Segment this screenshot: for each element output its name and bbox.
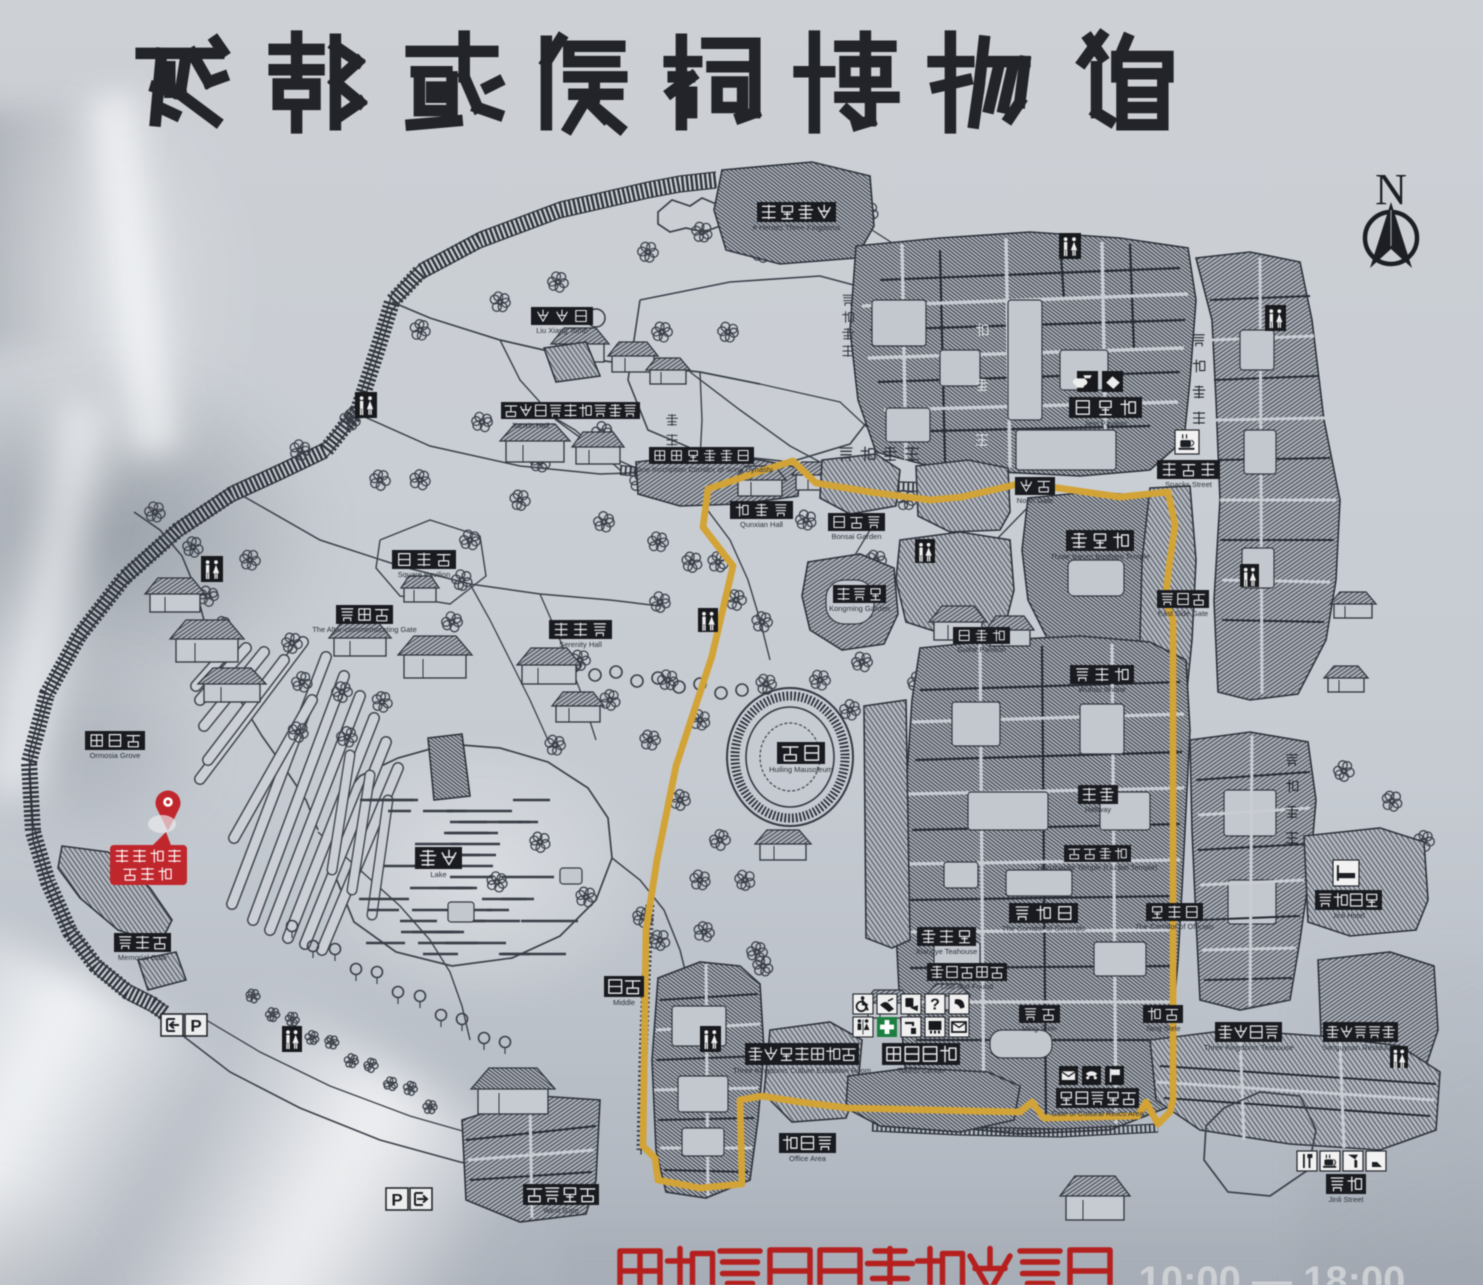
svg-text:# Heroes Three Kingdoms: # Heroes Three Kingdoms xyxy=(753,223,841,232)
svg-text:Three Sworn Brothers Temple: Three Sworn Brothers Temple xyxy=(1050,552,1150,561)
svg-text:Liu Xiang Tomb: Liu Xiang Tomb xyxy=(536,326,588,335)
svg-text:Jinli Hotel: Jinli Hotel xyxy=(1332,911,1365,920)
svg-text:Ormosia Grove: Ormosia Grove xyxy=(90,751,141,760)
svg-text:The Altar-commemorating Gate: The Altar-commemorating Gate xyxy=(312,625,417,634)
svg-text:Huiling Mausoleum: Huiling Mausoleum xyxy=(769,765,833,774)
svg-text:Square Pavilion: Square Pavilion xyxy=(398,570,451,579)
svg-text:East Side Gate: East Side Gate xyxy=(1158,609,1208,618)
svg-text:Jianxin Hall: Jianxin Hall xyxy=(511,421,550,430)
svg-text:Jinli Street: Jinli Street xyxy=(1328,1195,1364,1204)
svg-text:Hallway: Hallway xyxy=(1085,805,1112,814)
svg-text:Gate of Cultural Relics Area: Gate of Cultural Relics Area xyxy=(1051,1109,1144,1118)
svg-text:10:00 — 18:00: 10:00 — 18:00 xyxy=(1139,1259,1406,1285)
svg-text:Tourist Center: Tourist Center xyxy=(898,1066,945,1075)
svg-text:?: ? xyxy=(930,997,940,1014)
svg-text:Office Area: Office Area xyxy=(789,1154,827,1163)
svg-text:Tang Stele: Tang Stele xyxy=(1145,1024,1180,1033)
svg-text:Kongming Garden: Kongming Garden xyxy=(829,604,890,613)
svg-text:Sanguyuan Restaurant: Sanguyuan Restaurant xyxy=(1322,1043,1400,1052)
svg-text:Ming Stele: Ming Stele xyxy=(1022,1024,1057,1033)
svg-text:The Corridor of Generals: The Corridor of Generals xyxy=(1002,924,1085,933)
svg-text:North Gate: North Gate xyxy=(1017,496,1054,505)
svg-text:Three Kingdoms Culture Exhibit: Three Kingdoms Culture Exhibition Room xyxy=(733,1066,871,1075)
svg-text:P: P xyxy=(391,1191,402,1210)
svg-text:Middle: Middle xyxy=(613,998,635,1007)
svg-text:Wuhou Shrine: Wuhou Shrine xyxy=(1078,685,1125,694)
svg-text:Serenity Hall: Serenity Hall xyxy=(559,640,602,649)
svg-text:Bonsai Garden: Bonsai Garden xyxy=(831,532,881,541)
svg-text:Guihe Pavilion: Guihe Pavilion xyxy=(957,645,1005,654)
svg-text:Lake: Lake xyxy=(430,870,446,879)
svg-text:Lost and Found: Lost and Found xyxy=(941,982,993,991)
svg-text:Three Kingdoms Teahouse: Three Kingdoms Teahouse xyxy=(1204,1043,1294,1052)
svg-text:Qunxian Hall: Qunxian Hall xyxy=(740,520,783,529)
svg-text:West Gate: West Gate xyxy=(543,1206,578,1215)
svg-text:The Corridor of Officials: The Corridor of Officials xyxy=(1135,922,1214,931)
svg-text:Stone Inscription Corridor of: Stone Inscription Corridor of Song Dynas… xyxy=(630,465,772,474)
svg-text:Hanzhaolie Temple (Liu Bei Tem: Hanzhaolie Temple (Liu Bei Temple) xyxy=(1038,863,1158,872)
svg-text:Xiangye Teahouse: Xiangye Teahouse xyxy=(916,947,978,956)
svg-text:Memorial Gate: Memorial Gate xyxy=(118,953,167,962)
svg-text:P: P xyxy=(190,1017,201,1036)
svg-text:Snacks Street: Snacks Street xyxy=(1165,480,1213,489)
svg-text:Jieyi Pavilion: Jieyi Pavilion xyxy=(1084,419,1127,428)
